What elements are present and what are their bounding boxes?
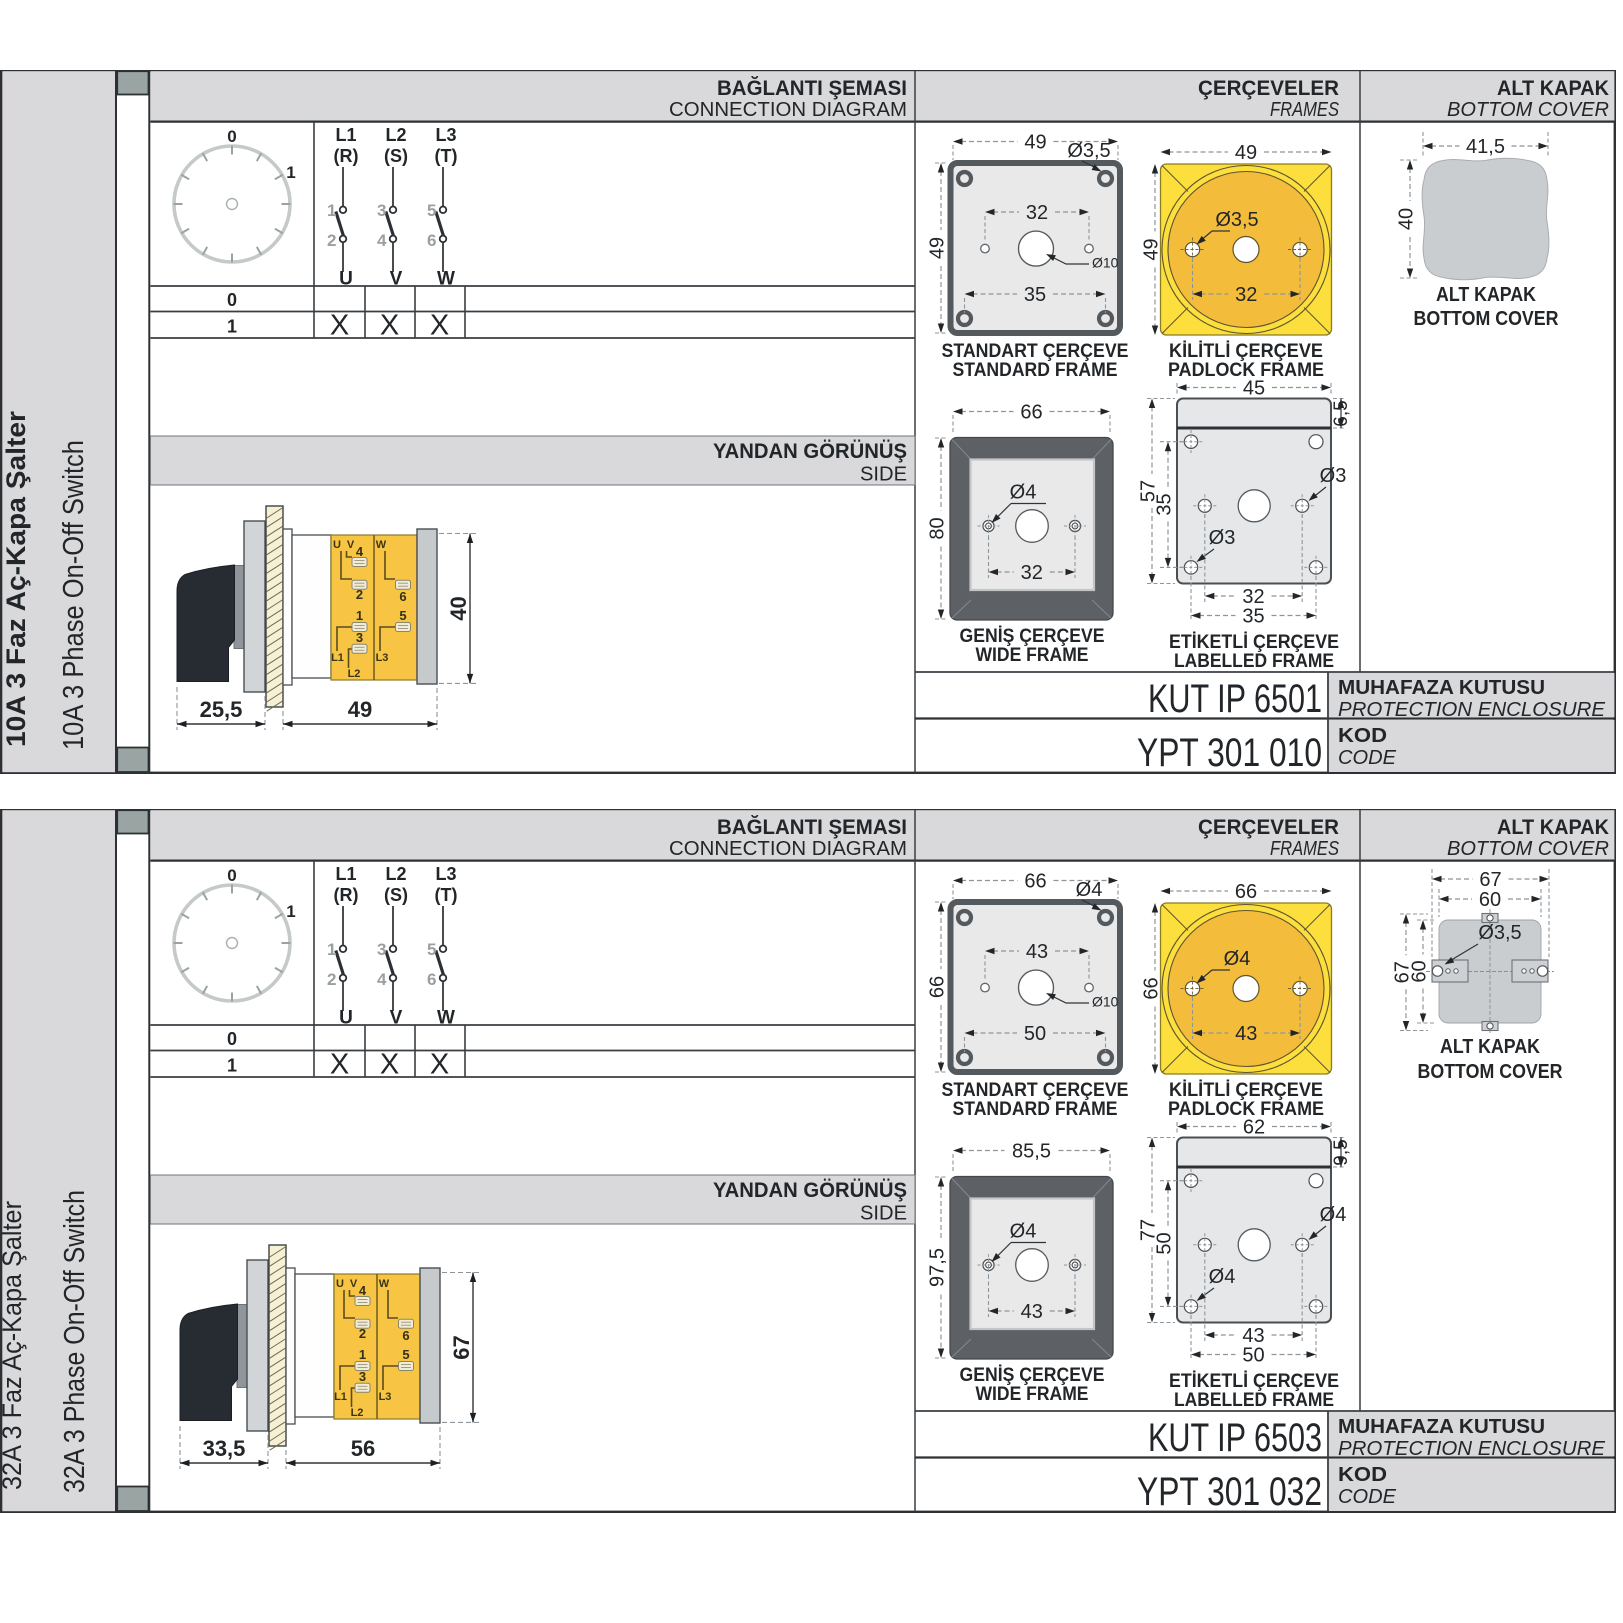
svg-text:Ø3: Ø3 [1320,465,1347,487]
svg-text:43: 43 [1021,1301,1043,1323]
svg-text:ALT KAPAK: ALT KAPAK [1440,1036,1540,1058]
svg-text:35: 35 [1242,606,1264,628]
svg-text:43: 43 [1026,941,1048,963]
svg-text:50: 50 [1024,1023,1046,1045]
svg-text:CONNECTION DIAGRAM: CONNECTION DIAGRAM [669,99,907,121]
svg-text:49: 49 [1235,142,1257,164]
svg-text:Ø3,5: Ø3,5 [1478,922,1521,944]
svg-text:STANDART ÇERÇEVE: STANDART ÇERÇEVE [942,1080,1129,1101]
svg-text:ÇERÇEVELER: ÇERÇEVELER [1198,816,1339,839]
svg-text:X: X [380,1049,399,1081]
svg-text:L3: L3 [435,125,456,145]
svg-text:5: 5 [427,201,436,220]
svg-text:ALT KAPAK: ALT KAPAK [1436,284,1536,306]
svg-text:32: 32 [1235,284,1257,306]
svg-text:5: 5 [427,940,436,959]
svg-text:KUT IP 6501: KUT IP 6501 [1148,677,1322,721]
svg-text:66: 66 [1141,977,1163,999]
svg-text:FRAMES: FRAMES [1270,838,1340,860]
svg-text:41,5: 41,5 [1466,136,1505,158]
svg-text:60: 60 [1409,960,1431,982]
svg-text:6: 6 [399,589,406,604]
svg-text:L3: L3 [379,1391,392,1403]
svg-text:1: 1 [327,201,336,220]
svg-text:YANDAN GÖRÜNÜŞ: YANDAN GÖRÜNÜŞ [713,1179,907,1202]
svg-text:32A 3 Phase On-Off Switch: 32A 3 Phase On-Off Switch [59,1190,91,1493]
svg-text:L1: L1 [334,1391,347,1403]
svg-text:L2: L2 [385,125,406,145]
svg-text:0: 0 [227,866,236,885]
svg-text:ETİKETLİ ÇERÇEVE: ETİKETLİ ÇERÇEVE [1169,632,1339,653]
svg-text:L2: L2 [351,1407,364,1419]
svg-text:YANDAN GÖRÜNÜŞ: YANDAN GÖRÜNÜŞ [713,440,907,463]
svg-text:STANDARD FRAME: STANDARD FRAME [953,360,1118,381]
svg-text:KİLİTLİ ÇERÇEVE: KİLİTLİ ÇERÇEVE [1169,1080,1323,1101]
svg-text:35: 35 [1024,284,1046,306]
svg-text:32: 32 [1021,562,1043,584]
svg-text:2: 2 [327,970,336,989]
svg-text:49: 49 [1024,132,1046,154]
svg-text:KOD: KOD [1338,725,1387,747]
svg-text:80: 80 [927,517,949,539]
svg-text:BAĞLANTI ŞEMASI: BAĞLANTI ŞEMASI [717,76,907,100]
svg-text:KOD: KOD [1338,1464,1387,1486]
svg-text:6: 6 [427,970,436,989]
svg-text:62: 62 [1243,1117,1265,1139]
svg-text:L3: L3 [435,864,456,884]
svg-text:67: 67 [1479,869,1501,891]
svg-text:MUHAFAZA KUTUSU: MUHAFAZA KUTUSU [1338,677,1545,699]
svg-text:5: 5 [399,608,406,623]
svg-text:32A 3 Faz Aç-Kapa Şalter: 32A 3 Faz Aç-Kapa Şalter [0,1201,27,1490]
svg-text:CODE: CODE [1338,747,1397,769]
svg-text:Ø3,5: Ø3,5 [1067,140,1110,162]
svg-text:2: 2 [356,587,363,602]
svg-text:MUHAFAZA KUTUSU: MUHAFAZA KUTUSU [1338,1416,1545,1438]
svg-text:L3: L3 [376,652,389,664]
svg-text:10A 3 Phase On-Off Switch: 10A 3 Phase On-Off Switch [58,440,90,750]
svg-text:(R): (R) [334,146,359,166]
svg-text:KUT IP 6503: KUT IP 6503 [1148,1416,1322,1460]
svg-text:X: X [330,1049,349,1081]
svg-text:Ø10: Ø10 [1092,255,1119,271]
svg-text:45: 45 [1243,378,1265,400]
svg-text:GENİŞ ÇERÇEVE: GENİŞ ÇERÇEVE [960,626,1105,647]
svg-text:GENİŞ ÇERÇEVE: GENİŞ ÇERÇEVE [960,1365,1105,1386]
svg-text:X: X [430,310,449,342]
svg-text:(R): (R) [334,885,359,905]
svg-text:40: 40 [446,596,471,620]
svg-text:67: 67 [449,1335,474,1359]
svg-text:L2: L2 [348,668,361,680]
svg-text:3: 3 [356,630,363,645]
svg-text:0: 0 [227,127,236,146]
svg-text:U: U [336,1278,344,1290]
svg-text:1: 1 [327,940,336,959]
svg-text:1: 1 [286,163,295,182]
svg-text:(T): (T) [435,885,458,905]
svg-text:66: 66 [1020,402,1042,424]
svg-text:W: W [379,1278,390,1290]
svg-text:33,5: 33,5 [203,1436,246,1461]
svg-text:(S): (S) [384,146,408,166]
svg-text:6: 6 [402,1328,409,1343]
svg-text:6,5: 6,5 [1331,400,1352,426]
svg-text:6: 6 [427,231,436,250]
svg-text:STANDART ÇERÇEVE: STANDART ÇERÇEVE [942,341,1129,362]
svg-text:LABELLED FRAME: LABELLED FRAME [1174,651,1334,672]
svg-text:Ø4: Ø4 [1224,948,1251,970]
svg-text:1: 1 [286,902,295,921]
svg-text:ALT KAPAK: ALT KAPAK [1497,816,1609,839]
svg-text:X: X [380,310,399,342]
svg-text:CONNECTION DIAGRAM: CONNECTION DIAGRAM [669,838,907,860]
svg-text:3: 3 [377,201,386,220]
svg-text:1: 1 [227,317,237,337]
svg-text:V: V [350,1278,358,1290]
svg-text:FRAMES: FRAMES [1270,99,1340,121]
svg-text:66: 66 [1024,871,1046,893]
svg-text:32: 32 [1026,202,1048,224]
svg-text:85,5: 85,5 [1012,1141,1051,1163]
svg-text:4: 4 [377,970,387,989]
svg-text:10A 3 Faz Aç-Kapa Şalter: 10A 3 Faz Aç-Kapa Şalter [1,410,31,747]
svg-text:L1: L1 [335,125,356,145]
svg-text:Ø4: Ø4 [1010,1221,1037,1243]
svg-text:3: 3 [359,1369,366,1384]
svg-text:Ø4: Ø4 [1076,879,1103,901]
svg-text:43: 43 [1235,1023,1257,1045]
svg-text:1: 1 [227,1056,237,1076]
svg-text:BOTTOM COVER: BOTTOM COVER [1447,99,1609,121]
svg-text:2: 2 [327,231,336,250]
svg-text:Ø3: Ø3 [1209,527,1236,549]
svg-text:BOTTOM COVER: BOTTOM COVER [1447,838,1609,860]
svg-text:PROTECTION ENCLOSURE: PROTECTION ENCLOSURE [1338,699,1606,721]
svg-text:40: 40 [1396,208,1418,230]
svg-text:25,5: 25,5 [200,697,243,722]
svg-text:STANDARD FRAME: STANDARD FRAME [953,1099,1118,1120]
svg-text:66: 66 [927,976,949,998]
svg-text:Ø4: Ø4 [1010,482,1037,504]
svg-text:BOTTOM COVER: BOTTOM COVER [1418,1061,1563,1083]
svg-text:1: 1 [359,1347,366,1362]
svg-text:49: 49 [927,237,949,259]
svg-text:5: 5 [402,1347,409,1362]
svg-text:L2: L2 [385,864,406,884]
svg-text:3: 3 [377,940,386,959]
svg-text:4: 4 [356,544,364,559]
svg-text:ALT KAPAK: ALT KAPAK [1497,77,1609,100]
svg-text:1: 1 [356,608,363,623]
svg-text:X: X [330,310,349,342]
svg-text:SIDE: SIDE [860,464,907,486]
svg-text:YPT 301 032: YPT 301 032 [1137,1470,1322,1514]
svg-text:ETİKETLİ ÇERÇEVE: ETİKETLİ ÇERÇEVE [1169,1371,1339,1392]
svg-text:49: 49 [348,697,372,722]
svg-text:50: 50 [1242,1345,1264,1367]
svg-text:Ø10: Ø10 [1092,994,1119,1010]
svg-text:X: X [430,1049,449,1081]
svg-text:35: 35 [1154,493,1176,515]
svg-text:BOTTOM COVER: BOTTOM COVER [1414,308,1559,330]
svg-text:BAĞLANTI ŞEMASI: BAĞLANTI ŞEMASI [717,815,907,839]
svg-text:WIDE FRAME: WIDE FRAME [976,1384,1089,1405]
svg-text:4: 4 [377,231,387,250]
svg-text:ÇERÇEVELER: ÇERÇEVELER [1198,77,1339,100]
svg-text:(T): (T) [435,146,458,166]
svg-text:L1: L1 [335,864,356,884]
svg-text:0: 0 [227,290,237,310]
svg-text:PROTECTION ENCLOSURE: PROTECTION ENCLOSURE [1338,1438,1606,1460]
svg-text:66: 66 [1235,881,1257,903]
svg-text:LABELLED FRAME: LABELLED FRAME [1174,1390,1334,1411]
svg-text:WIDE FRAME: WIDE FRAME [976,645,1089,666]
svg-text:CODE: CODE [1338,1486,1397,1508]
svg-text:50: 50 [1154,1232,1176,1254]
svg-text:49: 49 [1141,238,1163,260]
svg-text:Ø4: Ø4 [1320,1204,1347,1226]
svg-text:V: V [347,539,355,551]
svg-text:9,5: 9,5 [1331,1139,1352,1165]
svg-text:W: W [376,539,387,551]
svg-text:0: 0 [227,1029,237,1049]
svg-text:Ø4: Ø4 [1209,1266,1236,1288]
svg-text:KİLİTLİ ÇERÇEVE: KİLİTLİ ÇERÇEVE [1169,341,1323,362]
svg-text:97,5: 97,5 [927,1248,949,1287]
svg-text:L1: L1 [331,652,344,664]
svg-text:SIDE: SIDE [860,1203,907,1225]
svg-text:2: 2 [359,1326,366,1341]
svg-text:(S): (S) [384,885,408,905]
svg-text:U: U [333,539,341,551]
svg-text:60: 60 [1479,889,1501,911]
svg-text:4: 4 [359,1283,367,1298]
svg-text:56: 56 [351,1436,375,1461]
svg-text:YPT 301 010: YPT 301 010 [1137,731,1322,775]
svg-text:Ø3,5: Ø3,5 [1215,209,1258,231]
